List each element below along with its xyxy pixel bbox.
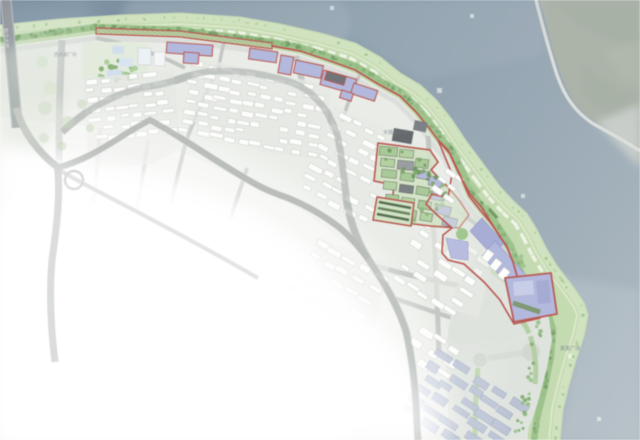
svg-text:大境路小学: 大境路小学 <box>383 129 408 136</box>
svg-text:西大通广场: 西大通广场 <box>54 51 77 58</box>
svg-text:某某广场: 某某广场 <box>560 345 580 352</box>
svg-text:魁立大桥: 魁立大桥 <box>2 28 10 48</box>
